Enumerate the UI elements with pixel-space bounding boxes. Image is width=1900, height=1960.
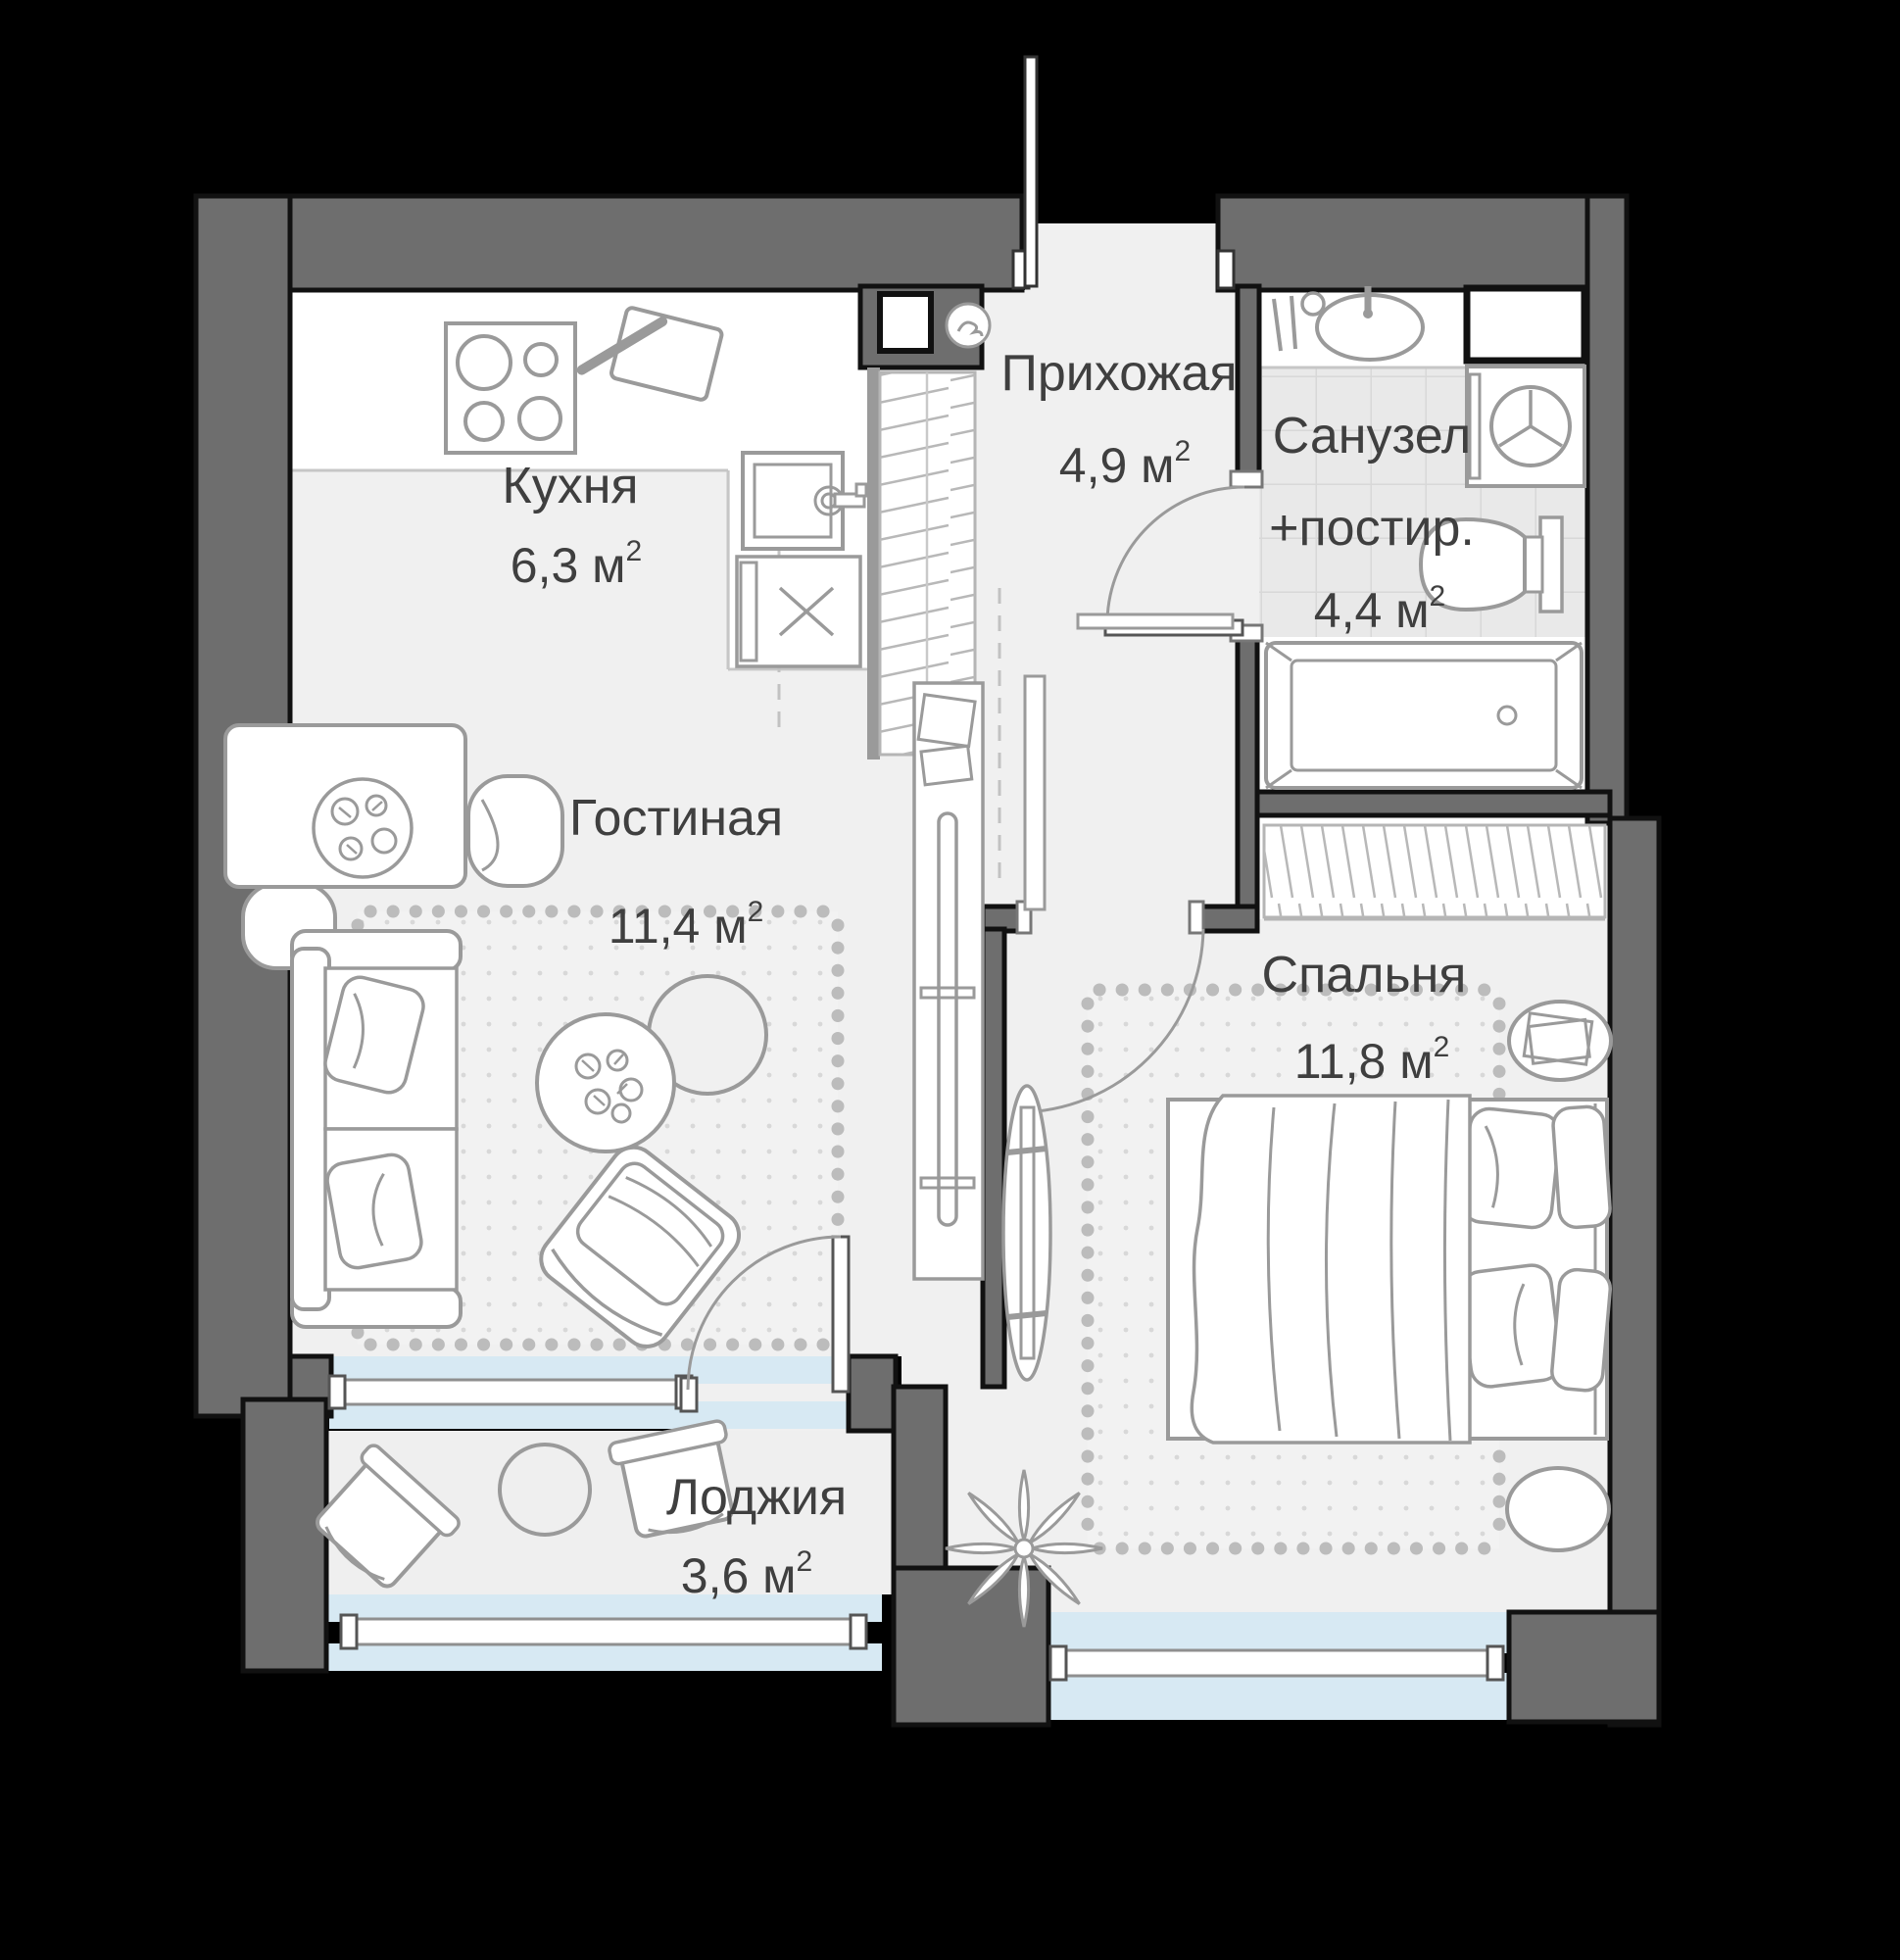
mirror-icon (1003, 1086, 1050, 1380)
kitchen-label: Кухня (502, 458, 638, 514)
pillow-icon (1459, 1263, 1563, 1389)
wall-balcony-jamb-block (849, 1356, 896, 1431)
bathroom-area: 4,4 м2 (1314, 580, 1445, 638)
wall-right-upper (1587, 196, 1627, 823)
wall-bathroom-bottom (1257, 792, 1610, 815)
floor-plan-image: Кухня 6,3 м2 Прихожая 4,9 м2 Санузел +по… (0, 0, 1900, 1960)
niche-icon (880, 294, 931, 351)
entrance-threshold (1025, 223, 1218, 292)
floor-plan-svg: Кухня 6,3 м2 Прихожая 4,9 м2 Санузел +по… (0, 0, 1900, 1960)
wall-partition-living-bedroom (983, 929, 1004, 1387)
wall-right-lower (1610, 818, 1659, 1725)
washing-machine-icon (1467, 367, 1584, 486)
living-area: 11,4 м2 (609, 896, 764, 954)
wall-bedroom-window-corner (1509, 1612, 1659, 1722)
entrance-door-leaf (1025, 57, 1037, 286)
stove-icon (446, 323, 575, 453)
shaft-icon (1467, 288, 1584, 361)
sliding-panel-horizontal (1078, 614, 1233, 628)
pillow-icon (1460, 1106, 1562, 1229)
bathroom-label: Санузел (1273, 408, 1472, 465)
loggia-area: 3,6 м2 (681, 1545, 812, 1603)
pillow-icon (1552, 1105, 1611, 1228)
bedroom-label: Спальня (1262, 947, 1467, 1004)
coffee-table-icon (537, 1014, 674, 1151)
pillow-icon (1550, 1268, 1611, 1392)
bedroom-wardrobe-icon (1264, 825, 1605, 919)
loggia-window-glass (326, 1643, 882, 1671)
sliding-panel-vertical (1025, 676, 1045, 909)
nightstand-icon (1509, 1002, 1611, 1080)
plant-icon (946, 1470, 1102, 1627)
plate-icon (314, 779, 412, 877)
nightstand-icon (1507, 1468, 1609, 1550)
wall-bathroom-left-upper (1238, 286, 1259, 480)
kitchen-area: 6,3 м2 (511, 535, 642, 593)
bathtub-icon (1266, 643, 1582, 788)
wall-loggia-left (243, 1399, 326, 1671)
bathroom-door-threshold (1238, 480, 1261, 632)
bedroom-window-frame (1050, 1646, 1503, 1680)
living-label: Гостиная (569, 790, 783, 847)
bathroom-label-2: +постир. (1269, 500, 1475, 557)
wall-top-right (1218, 196, 1627, 290)
living-window-frame (329, 1376, 692, 1408)
bedroom-window-glass (1048, 1673, 1509, 1720)
loggia-label: Лоджия (666, 1469, 847, 1526)
bedroom-window-glass (1048, 1612, 1509, 1653)
bed-icon (1168, 1096, 1612, 1443)
hallway-label: Прихожая (1001, 345, 1238, 402)
vent-icon (947, 304, 990, 347)
wall-bathroom-left-lower (1238, 627, 1257, 931)
sofa-icon (292, 931, 461, 1327)
cabinet-icon (737, 557, 860, 666)
tv-console-icon (914, 683, 983, 1279)
wall-closet-thin (867, 367, 880, 759)
bedroom-area: 11,8 м2 (1294, 1031, 1450, 1089)
wall-top-left (196, 196, 1022, 290)
pillow-icon (324, 1152, 423, 1271)
hallway-area: 4,9 м2 (1059, 435, 1191, 493)
balcony-door-leaf (833, 1237, 849, 1392)
loggia-window-frame (341, 1615, 866, 1648)
